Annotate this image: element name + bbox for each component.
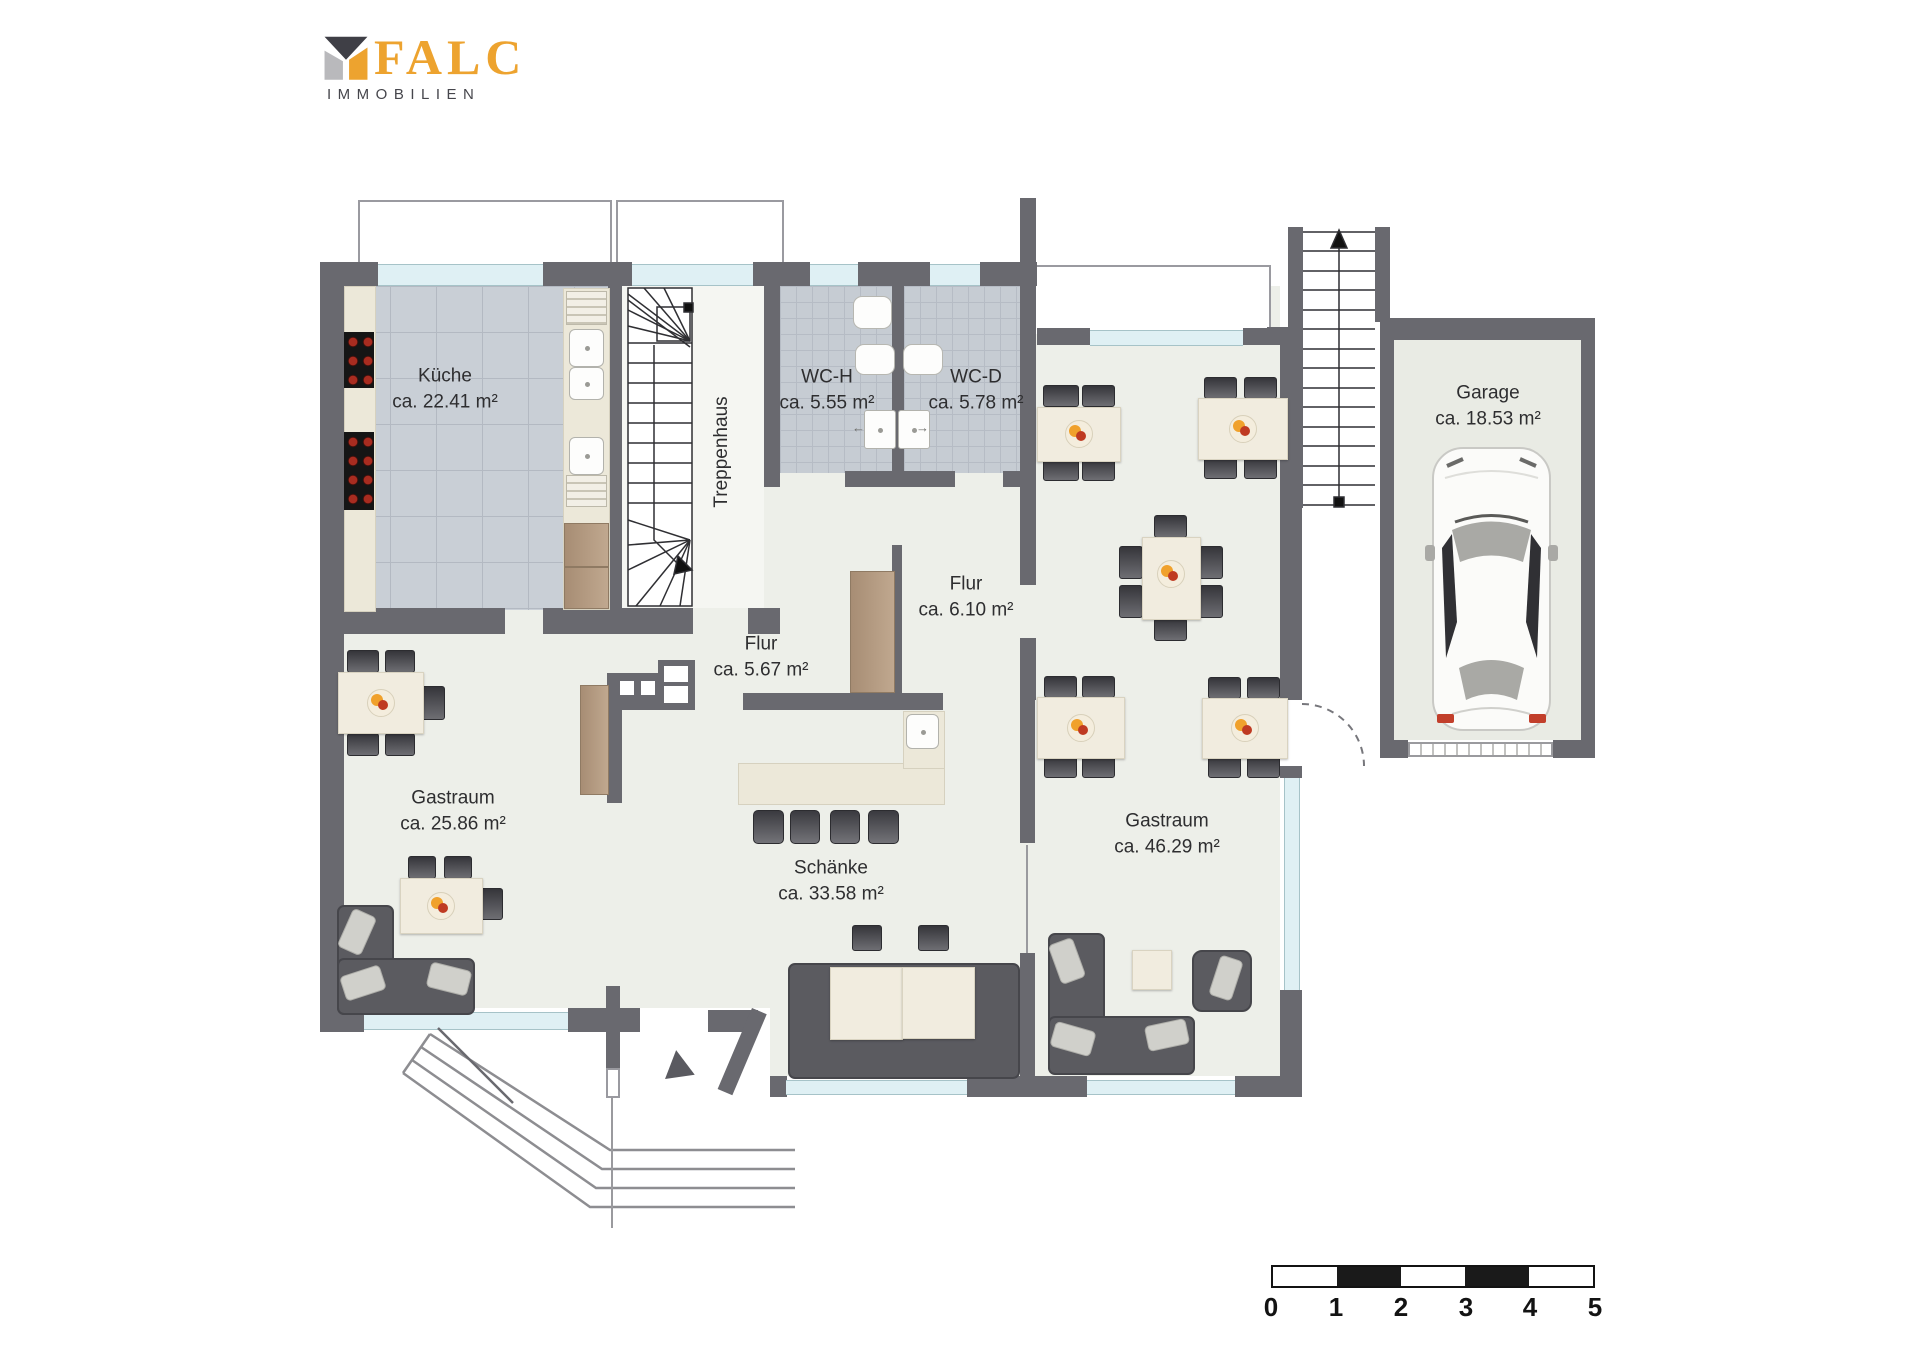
bar-stool [790, 810, 820, 844]
room-area: ca. 18.53 m² [1435, 406, 1541, 432]
wall [1267, 327, 1288, 342]
chair [1208, 677, 1241, 699]
scale-segment [1465, 1267, 1529, 1286]
wall [1288, 227, 1303, 508]
room-name: Küche [392, 363, 498, 389]
scale-label: 5 [1588, 1292, 1602, 1323]
wall-garage [1581, 318, 1595, 758]
wall [543, 608, 693, 634]
wall [753, 262, 810, 286]
wall [748, 608, 780, 634]
window [1284, 778, 1300, 990]
wall-garage [1380, 318, 1394, 758]
room-name: Gastraum [400, 785, 506, 811]
window [930, 264, 980, 286]
room-area: ca. 22.41 m² [392, 389, 498, 415]
room-name: Gastraum [1114, 808, 1220, 834]
door-swing-arrow-icon: → [916, 420, 929, 435]
floor-treppenhaus [622, 286, 764, 608]
chair [1082, 385, 1115, 407]
chair [421, 686, 445, 720]
window [1090, 330, 1243, 346]
fruit-plate-icon [1067, 714, 1095, 742]
bar-counter [738, 763, 945, 805]
cabinet [564, 567, 609, 609]
room-name: Schänke [778, 855, 884, 881]
room-area: ca. 5.78 m² [928, 390, 1023, 416]
chair [385, 733, 415, 756]
stove-icon [344, 332, 374, 388]
chair [480, 888, 503, 920]
fruit-plate-icon [1229, 415, 1257, 443]
chair [1119, 585, 1143, 618]
fruit-plate-icon [1231, 714, 1259, 742]
wall [858, 262, 930, 286]
side-table [1132, 950, 1172, 990]
chair [1154, 618, 1187, 641]
chair [1199, 585, 1223, 618]
chair [918, 925, 949, 951]
door-swing-arc [1302, 704, 1364, 766]
scale-segment [1273, 1267, 1337, 1286]
opening-line [1026, 845, 1028, 953]
window [1087, 1080, 1235, 1095]
chair [1043, 459, 1079, 481]
wall [606, 986, 620, 1068]
fruit-plate-icon [1157, 560, 1185, 588]
chair [1204, 377, 1237, 399]
room-name: WC-D [928, 364, 1023, 390]
chair [1082, 459, 1115, 481]
wall [1037, 328, 1090, 345]
chair [1082, 676, 1115, 698]
room-area: ca. 33.58 m² [778, 881, 884, 907]
table [830, 967, 903, 1040]
chair [1044, 676, 1077, 698]
wall [764, 286, 780, 487]
chair [1199, 546, 1223, 579]
room-label-schaenke: Schänke ca. 33.58 m² [778, 855, 884, 906]
wall [568, 1008, 640, 1032]
appliance-icon [566, 475, 607, 507]
brand-subtitle: IMMOBILIEN [327, 86, 480, 103]
entrance-arrow-icon [661, 1048, 694, 1079]
sink-icon [569, 367, 604, 400]
glass-block [620, 681, 634, 695]
room-label-treppenhaus: Treppenhaus [709, 396, 735, 507]
wall [1020, 638, 1036, 700]
wall [1280, 766, 1302, 778]
bar-stool [868, 810, 899, 844]
appliance-icon [566, 291, 607, 325]
chair [1208, 756, 1241, 778]
wall [543, 262, 632, 286]
wall [1020, 953, 1035, 1078]
exterior-stairs-icon [1303, 230, 1375, 507]
sink-icon [569, 437, 604, 475]
chair [1204, 457, 1237, 479]
room-label-gastraum-rechts: Gastraum ca. 46.29 m² [1114, 808, 1220, 859]
scale-segment [1529, 1267, 1593, 1286]
brand-name: FALC [374, 28, 526, 86]
window [632, 264, 753, 286]
lightwell-mid [616, 200, 784, 264]
scale-label: 2 [1394, 1292, 1408, 1323]
chair [852, 925, 882, 951]
washbasin-icon [864, 410, 896, 449]
window [786, 1080, 967, 1095]
scale-label: 3 [1459, 1292, 1473, 1323]
wall [892, 286, 904, 487]
sink-icon [569, 329, 604, 367]
chair [385, 650, 415, 673]
room-name: Flur [713, 631, 808, 657]
room-area: ca. 25.86 m² [400, 811, 506, 837]
wall [770, 1076, 787, 1097]
fruit-plate-icon [367, 689, 395, 717]
lightwell-left [358, 200, 612, 264]
scale-segment [1401, 1267, 1465, 1286]
chair [347, 733, 379, 756]
room-area: ca. 6.10 m² [918, 597, 1013, 623]
bar-stool [753, 810, 784, 844]
stove-icon [344, 432, 374, 510]
fruit-plate-icon [427, 892, 455, 920]
room-label-wc-d: WC-D ca. 5.78 m² [928, 364, 1023, 415]
glass-block [664, 666, 688, 682]
wall [1020, 700, 1035, 843]
room-area: ca. 5.55 m² [779, 390, 874, 416]
room-label-garage: Garage ca. 18.53 m² [1435, 380, 1541, 431]
terrace-outline [1033, 265, 1271, 334]
room-label-kueche: Küche ca. 22.41 m² [392, 363, 498, 414]
wall-garage [1380, 740, 1408, 758]
window [810, 264, 858, 286]
wall-garage [1553, 740, 1595, 758]
door-swing-arrow-icon: ← [852, 420, 865, 435]
chair [1119, 546, 1143, 579]
scale-label: 1 [1329, 1292, 1343, 1323]
room-name: Treppenhaus [709, 396, 735, 507]
fruit-plate-icon [1065, 420, 1093, 448]
wall [845, 471, 955, 487]
room-name: WC-H [779, 364, 874, 390]
wall [967, 1076, 1087, 1097]
garage-door [1408, 742, 1553, 757]
wall-garage [1380, 318, 1595, 340]
toilet-icon [853, 296, 892, 329]
scale-bar [1271, 1265, 1595, 1288]
chair [1043, 385, 1079, 407]
window [378, 264, 543, 286]
chair [1244, 457, 1277, 479]
scale-label: 0 [1264, 1292, 1278, 1323]
room-label-flur-gross: Flur ca. 6.10 m² [918, 571, 1013, 622]
chair [347, 650, 379, 673]
wall [1235, 1076, 1302, 1097]
room-name: Flur [918, 571, 1013, 597]
glass-block [641, 681, 655, 695]
chair [1082, 756, 1115, 778]
cabinet [564, 523, 609, 567]
room-area: ca. 46.29 m² [1114, 834, 1220, 860]
chair [1247, 756, 1280, 778]
chair [1044, 756, 1077, 778]
room-area: ca. 5.67 m² [713, 657, 808, 683]
room-name: Garage [1435, 380, 1541, 406]
floorplan-canvas: FALC IMMOBILIEN [0, 0, 1920, 1357]
chair [408, 856, 436, 879]
chair [1244, 377, 1277, 399]
wardrobe [850, 571, 895, 693]
scale-segment [1337, 1267, 1401, 1286]
sideboard [580, 685, 609, 795]
wall [743, 693, 943, 710]
scale-label: 4 [1523, 1292, 1537, 1323]
room-label-gastraum-links: Gastraum ca. 25.86 m² [400, 785, 506, 836]
wall [608, 286, 622, 608]
chair [1154, 515, 1187, 538]
bar-stool [830, 810, 860, 844]
room-label-wc-h: WC-H ca. 5.55 m² [779, 364, 874, 415]
door-post [606, 1068, 620, 1098]
table [902, 967, 975, 1039]
falc-logo-icon [323, 30, 369, 88]
glass-block [664, 686, 688, 703]
room-label-flur-klein: Flur ca. 5.67 m² [713, 631, 808, 682]
chair [444, 856, 472, 879]
wall [1375, 227, 1390, 322]
bar-sink-icon [906, 714, 939, 749]
chair [1247, 677, 1280, 699]
